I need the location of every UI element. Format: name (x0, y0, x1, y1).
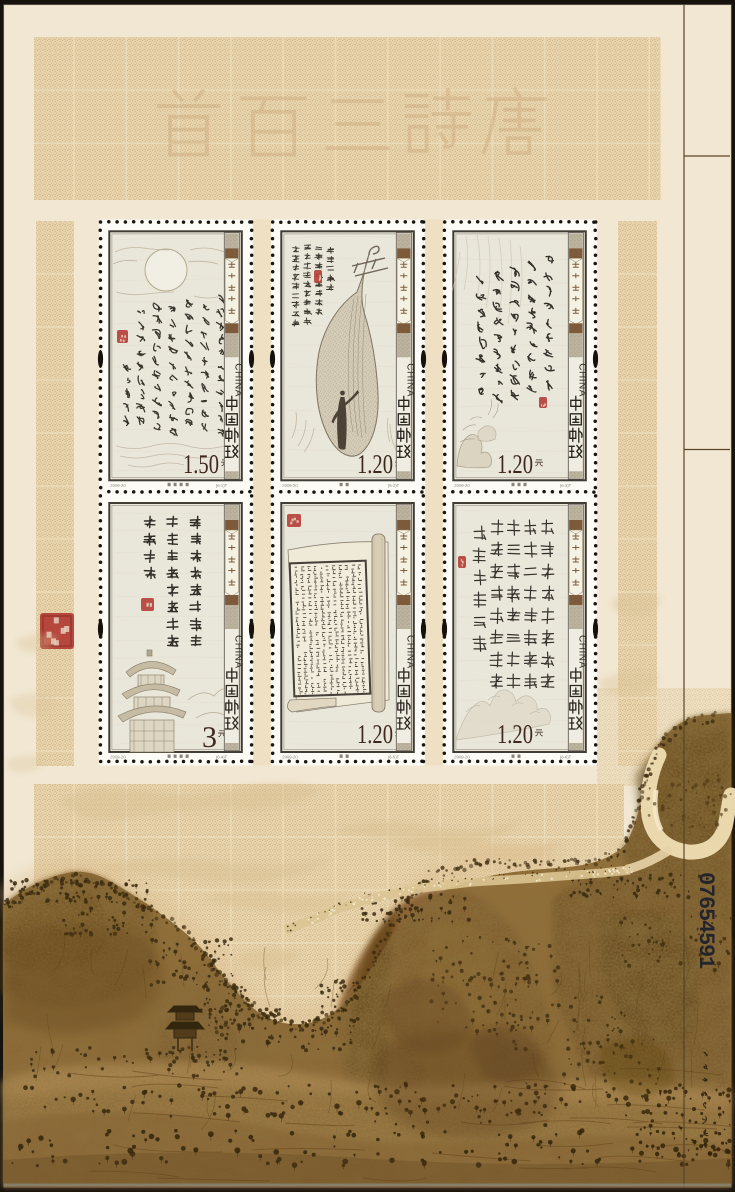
svg-text:1.20: 1.20 (497, 719, 533, 749)
svg-text:CHINA: CHINA (232, 635, 243, 669)
svg-text:CHINA: CHINA (232, 363, 243, 397)
svg-text:(6-6)T: (6-6)T (560, 755, 572, 760)
svg-text:(6-2)T: (6-2)T (388, 483, 400, 488)
svg-text:1.50: 1.50 (183, 449, 219, 479)
svg-text:CHINA: CHINA (576, 635, 587, 669)
svg-text:1.20: 1.20 (497, 449, 533, 479)
svg-text:2009-20: 2009-20 (110, 755, 126, 760)
svg-text:(6-3)T: (6-3)T (560, 483, 572, 488)
svg-text:2009-20: 2009-20 (110, 483, 126, 488)
svg-text:2009-20: 2009-20 (282, 755, 298, 760)
svg-text:CHINA: CHINA (404, 363, 415, 397)
svg-text:CHINA: CHINA (576, 363, 587, 397)
svg-text:2009-20: 2009-20 (282, 483, 298, 488)
svg-text:1.20: 1.20 (357, 449, 393, 479)
svg-text:1.20: 1.20 (357, 719, 393, 749)
svg-text:07654591: 07654591 (693, 872, 718, 969)
svg-text:(6-4)T: (6-4)T (216, 755, 228, 760)
svg-text:(6-5)T: (6-5)T (388, 755, 400, 760)
svg-text:3: 3 (202, 721, 217, 754)
svg-text:2009-20: 2009-20 (454, 755, 470, 760)
svg-text:(6-1)T: (6-1)T (216, 483, 228, 488)
svg-text:2009-20: 2009-20 (454, 483, 470, 488)
svg-text:CHINA: CHINA (404, 635, 415, 669)
